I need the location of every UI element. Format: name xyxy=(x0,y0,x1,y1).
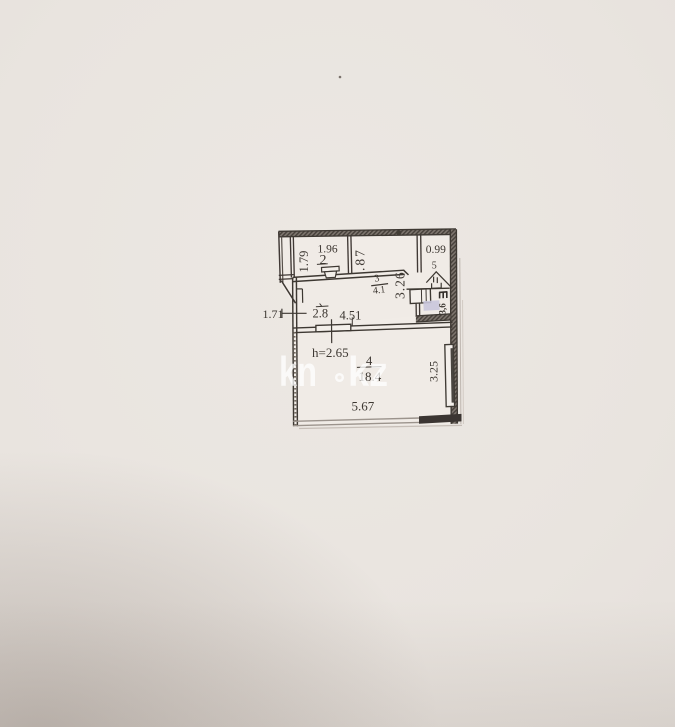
svg-text:4.51: 4.51 xyxy=(340,309,362,323)
svg-text:0.99: 0.99 xyxy=(426,244,446,256)
svg-text:2.8: 2.8 xyxy=(313,307,329,321)
svg-text:5: 5 xyxy=(432,261,437,272)
svg-text:.87: .87 xyxy=(353,248,368,271)
svg-text:1.79: 1.79 xyxy=(297,251,311,273)
svg-text:kn: kn xyxy=(279,348,317,395)
svg-text:kz: kz xyxy=(348,348,388,395)
svg-text:1.71: 1.71 xyxy=(263,307,284,321)
svg-text:3.25: 3.25 xyxy=(427,361,441,382)
svg-text:5.67: 5.67 xyxy=(352,399,375,414)
svg-text:3.26: 3.26 xyxy=(393,271,408,299)
svg-text:4.1: 4.1 xyxy=(372,284,386,296)
svg-text:h=2.65: h=2.65 xyxy=(312,345,349,360)
svg-text:2: 2 xyxy=(320,253,327,268)
svg-text:3,6: 3,6 xyxy=(437,303,447,315)
